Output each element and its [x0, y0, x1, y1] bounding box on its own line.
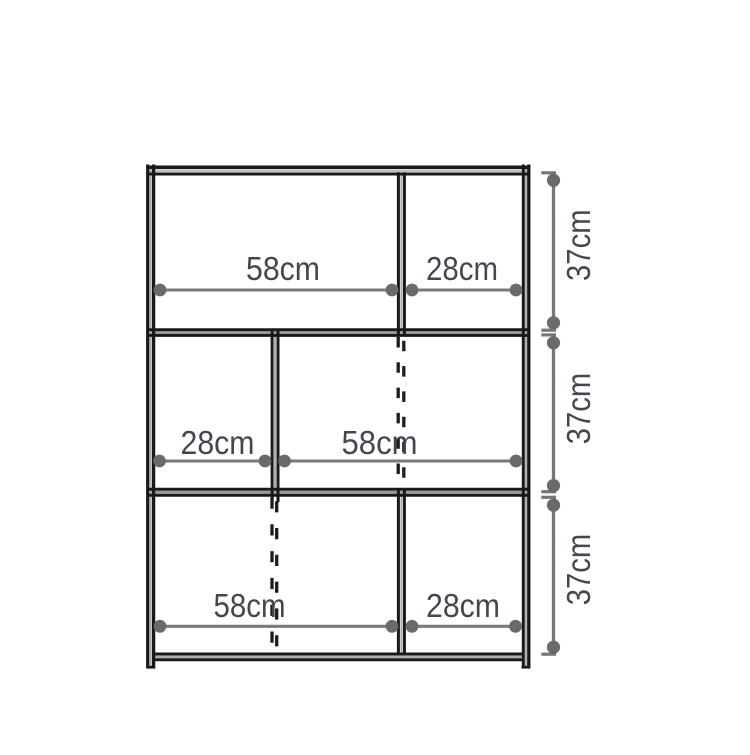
svg-text:28cm: 28cm [426, 250, 498, 287]
svg-text:37cm: 37cm [560, 209, 597, 281]
svg-text:58cm: 58cm [246, 250, 320, 287]
svg-text:58cm: 58cm [342, 424, 418, 461]
svg-text:37cm: 37cm [560, 373, 597, 445]
svg-text:28cm: 28cm [181, 424, 255, 461]
svg-text:28cm: 28cm [426, 587, 500, 624]
svg-text:37cm: 37cm [560, 534, 597, 606]
svg-text:58cm: 58cm [214, 587, 286, 624]
